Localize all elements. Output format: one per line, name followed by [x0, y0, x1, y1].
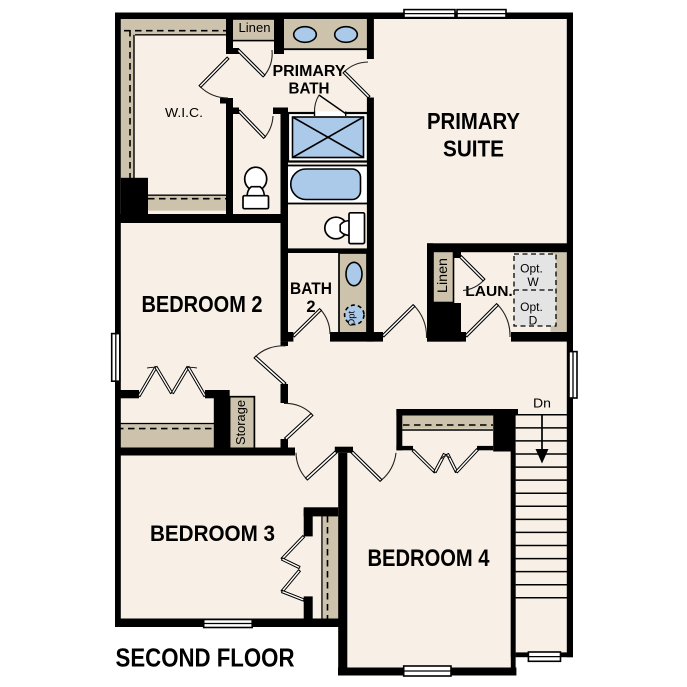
svg-text:Opt.: Opt.: [520, 300, 543, 314]
svg-text:W.I.C.: W.I.C.: [165, 105, 203, 120]
svg-text:Linen: Linen: [434, 258, 450, 293]
svg-text:Storage: Storage: [233, 400, 248, 445]
svg-text:SECOND FLOOR: SECOND FLOOR: [116, 645, 295, 673]
svg-text:Opt: Opt: [347, 310, 358, 326]
svg-text:Dn: Dn: [533, 396, 551, 411]
svg-text:PRIMARY: PRIMARY: [273, 63, 347, 80]
svg-text:BEDROOM 3: BEDROOM 3: [150, 521, 275, 546]
svg-text:PRIMARY: PRIMARY: [427, 108, 520, 134]
svg-text:BEDROOM 2: BEDROOM 2: [142, 291, 263, 317]
svg-text:SUITE: SUITE: [443, 136, 504, 162]
svg-text:BATH: BATH: [289, 81, 330, 98]
svg-text:BEDROOM 4: BEDROOM 4: [368, 545, 491, 572]
svg-text:D: D: [529, 313, 538, 327]
svg-text:BATH: BATH: [290, 280, 332, 298]
svg-text:LAUN.: LAUN.: [465, 283, 513, 300]
svg-text:Opt.: Opt.: [520, 262, 543, 276]
svg-text:Linen: Linen: [239, 20, 271, 35]
svg-text:W: W: [527, 275, 539, 289]
